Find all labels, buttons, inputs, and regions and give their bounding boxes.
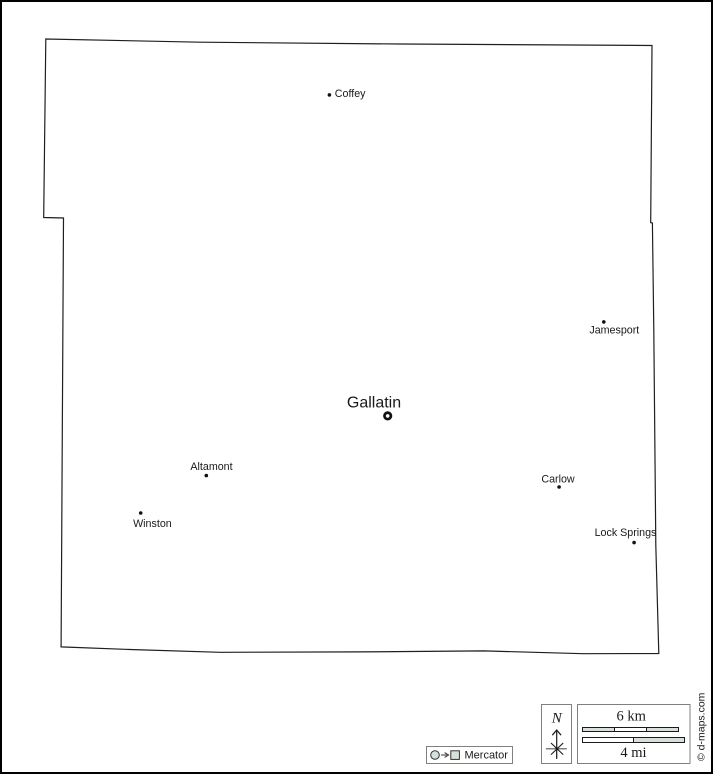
- svg-text:Coffey: Coffey: [335, 88, 366, 100]
- svg-text:Winston: Winston: [133, 518, 172, 530]
- svg-text:Carlow: Carlow: [541, 473, 575, 485]
- svg-text:Jamesport: Jamesport: [589, 325, 639, 337]
- svg-text:N: N: [551, 710, 563, 726]
- svg-text:Lock Springs: Lock Springs: [595, 527, 657, 539]
- svg-text:4 mi: 4 mi: [620, 745, 646, 761]
- svg-text:© d-maps.com: © d-maps.com: [696, 692, 708, 761]
- svg-text:6 km: 6 km: [616, 708, 646, 724]
- svg-text:Mercator: Mercator: [465, 750, 509, 762]
- svg-text:Altamont: Altamont: [190, 461, 232, 473]
- svg-text:Gallatin: Gallatin: [347, 395, 401, 412]
